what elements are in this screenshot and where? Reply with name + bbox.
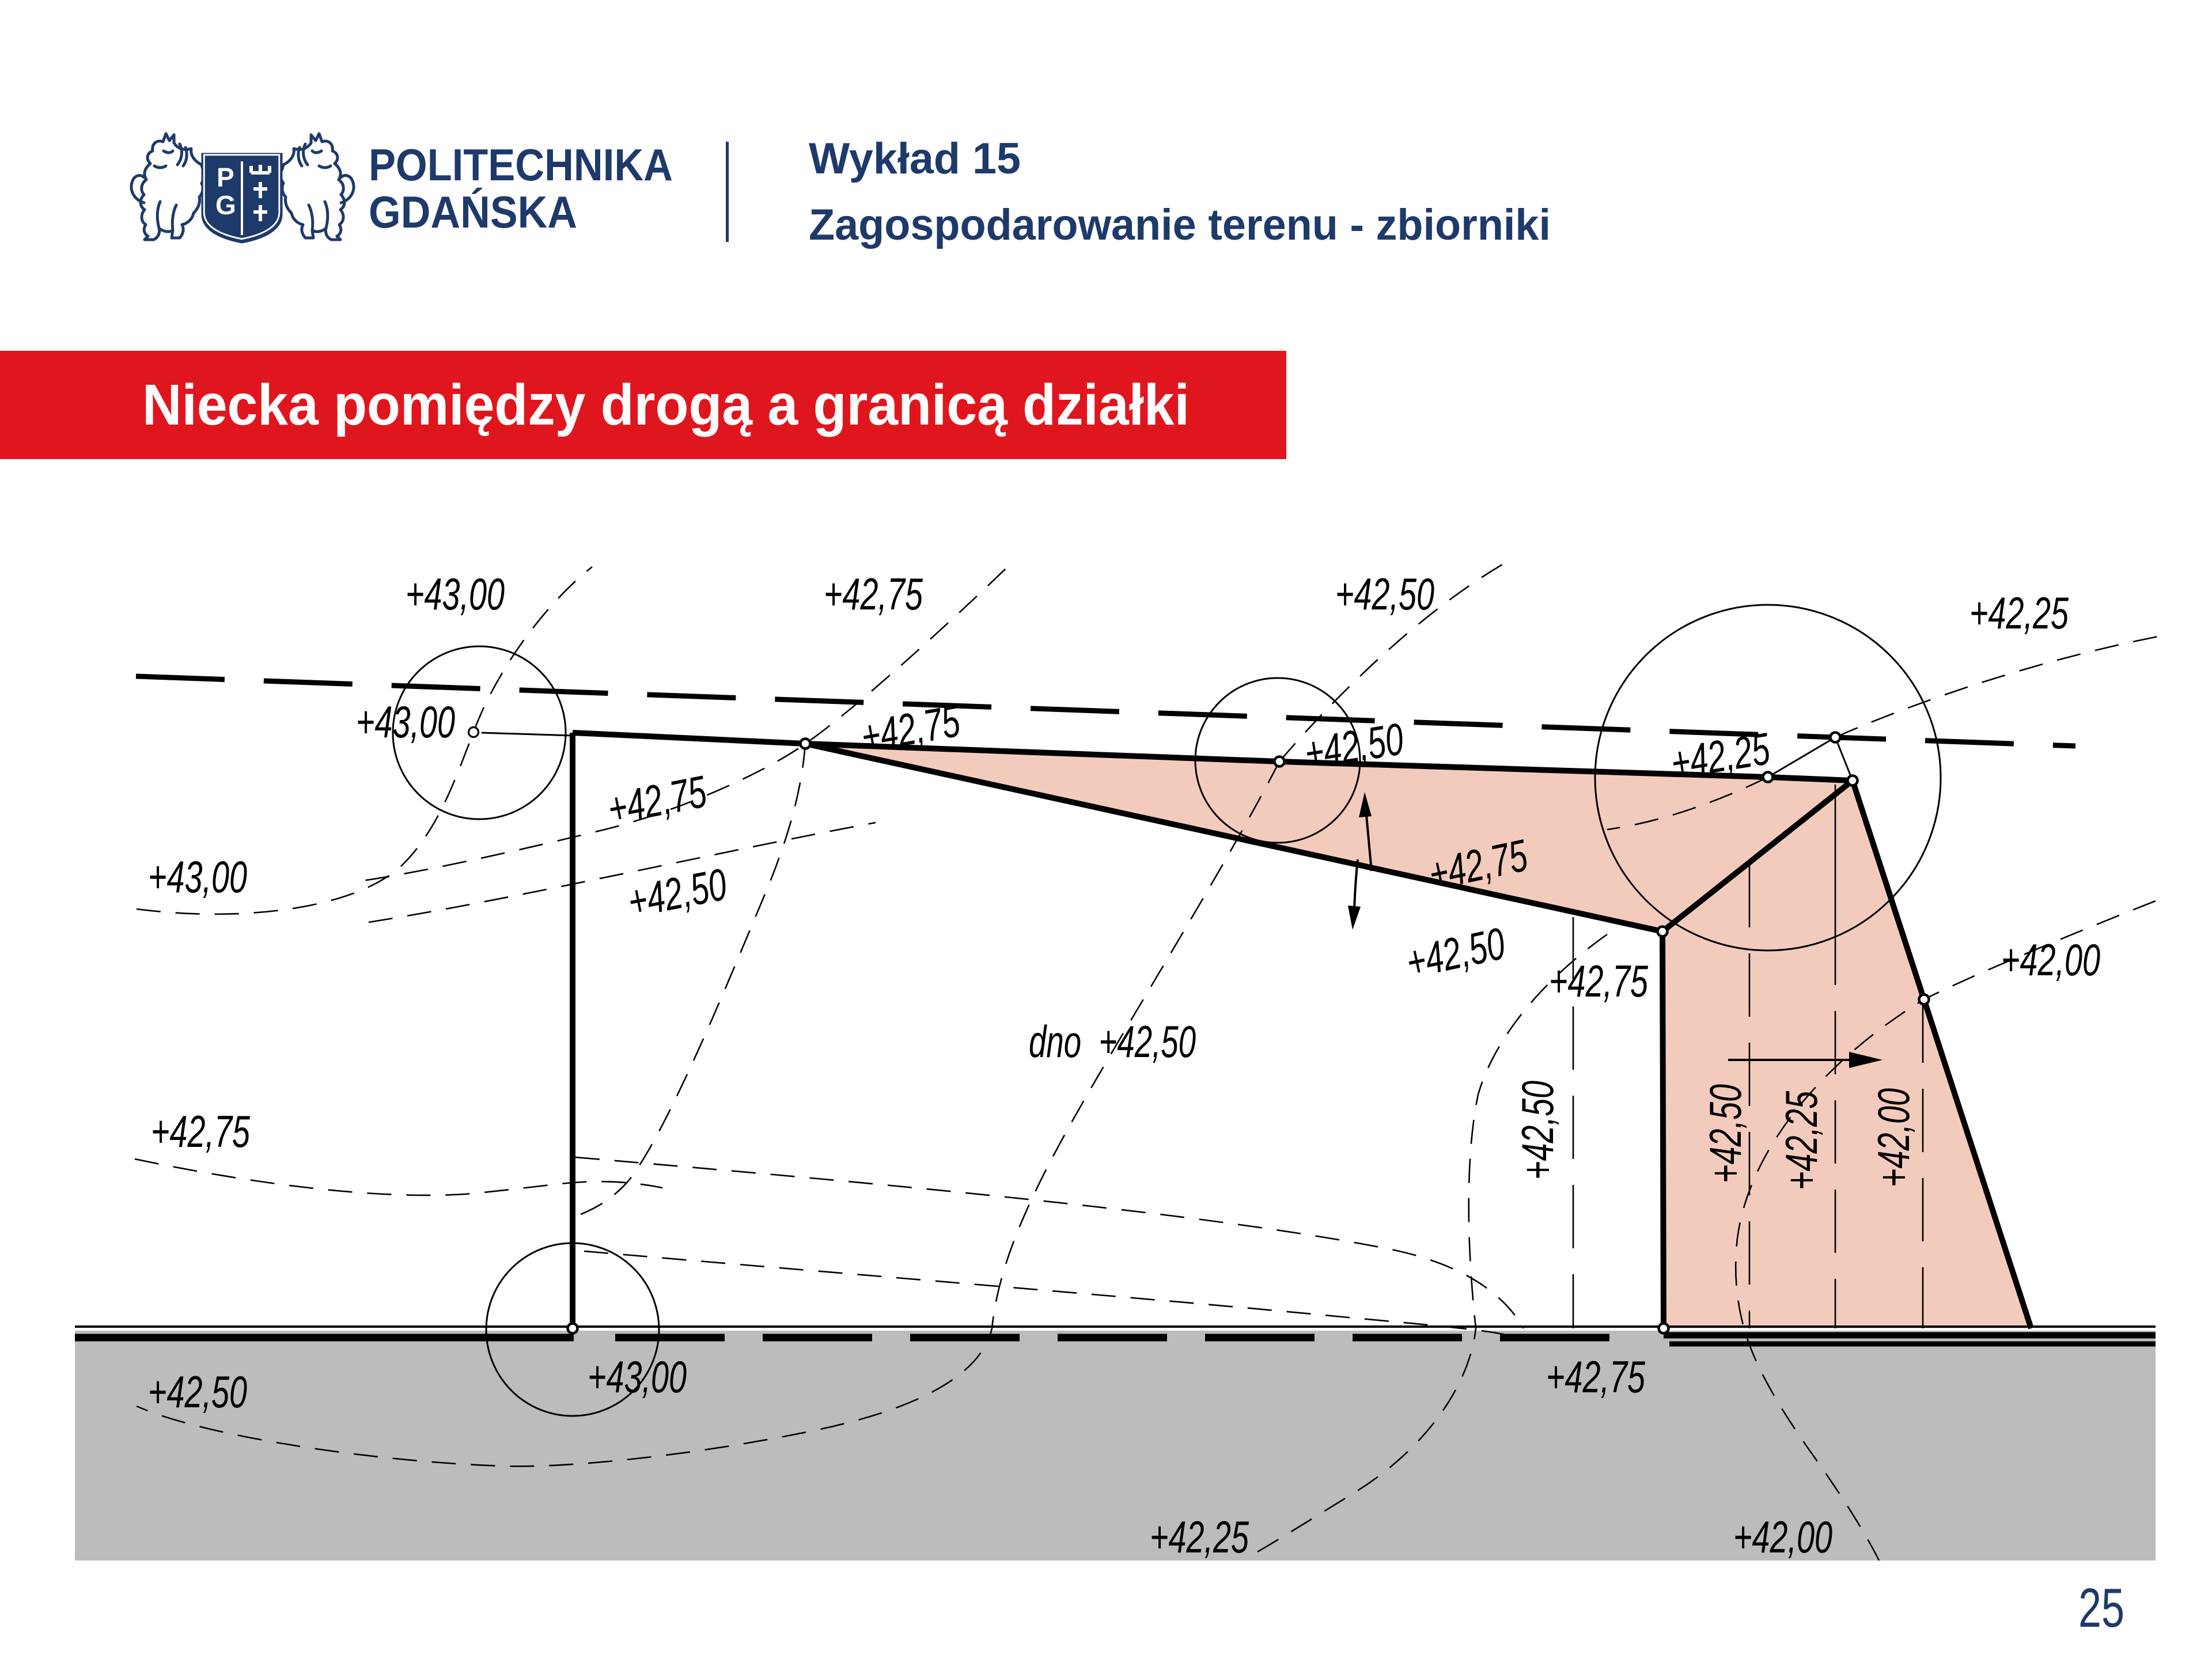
svg-text:+42,75: +42,75 xyxy=(1546,1351,1645,1402)
svg-text:+43,00: +43,00 xyxy=(356,696,455,747)
svg-text:G: G xyxy=(215,190,236,220)
svg-text:+42,50: +42,50 xyxy=(148,1366,247,1417)
svg-text:P: P xyxy=(217,162,234,192)
svg-text:+42,50: +42,50 xyxy=(1335,569,1434,619)
svg-text:Wykład 15: Wykład 15 xyxy=(809,134,1021,183)
svg-text:+42,00: +42,00 xyxy=(1733,1512,1832,1562)
svg-text:+42,50: +42,50 xyxy=(1700,1084,1751,1183)
svg-text:+43,00: +43,00 xyxy=(588,1351,687,1402)
svg-text:+42,75: +42,75 xyxy=(824,569,923,619)
svg-text:+42,75: +42,75 xyxy=(1549,956,1648,1006)
svg-text:25: 25 xyxy=(2078,1577,2124,1639)
svg-text:GDAŃSKA: GDAŃSKA xyxy=(369,187,577,237)
svg-text:Zagospodarowanie terenu - zbio: Zagospodarowanie terenu - zbiorniki xyxy=(809,200,1551,249)
svg-text:+43,00: +43,00 xyxy=(406,569,505,619)
svg-text:+42,50: +42,50 xyxy=(1512,1081,1563,1180)
svg-text:+42,75: +42,75 xyxy=(151,1106,250,1157)
svg-text:+43,00: +43,00 xyxy=(148,851,247,902)
svg-text:Niecka pomiędzy drogą a granic: Niecka pomiędzy drogą a granicą działki xyxy=(142,373,1190,437)
svg-text:+42,00: +42,00 xyxy=(2001,934,2100,985)
svg-text:+42,25: +42,25 xyxy=(1776,1091,1827,1190)
svg-text:POLITECHNIKA: POLITECHNIKA xyxy=(369,139,673,190)
svg-text:dno +42,50: dno +42,50 xyxy=(1029,1016,1196,1067)
svg-text:+42,00: +42,00 xyxy=(1868,1088,1919,1187)
svg-text:+42,25: +42,25 xyxy=(1969,588,2069,638)
svg-text:+42,25: +42,25 xyxy=(1150,1512,1249,1562)
